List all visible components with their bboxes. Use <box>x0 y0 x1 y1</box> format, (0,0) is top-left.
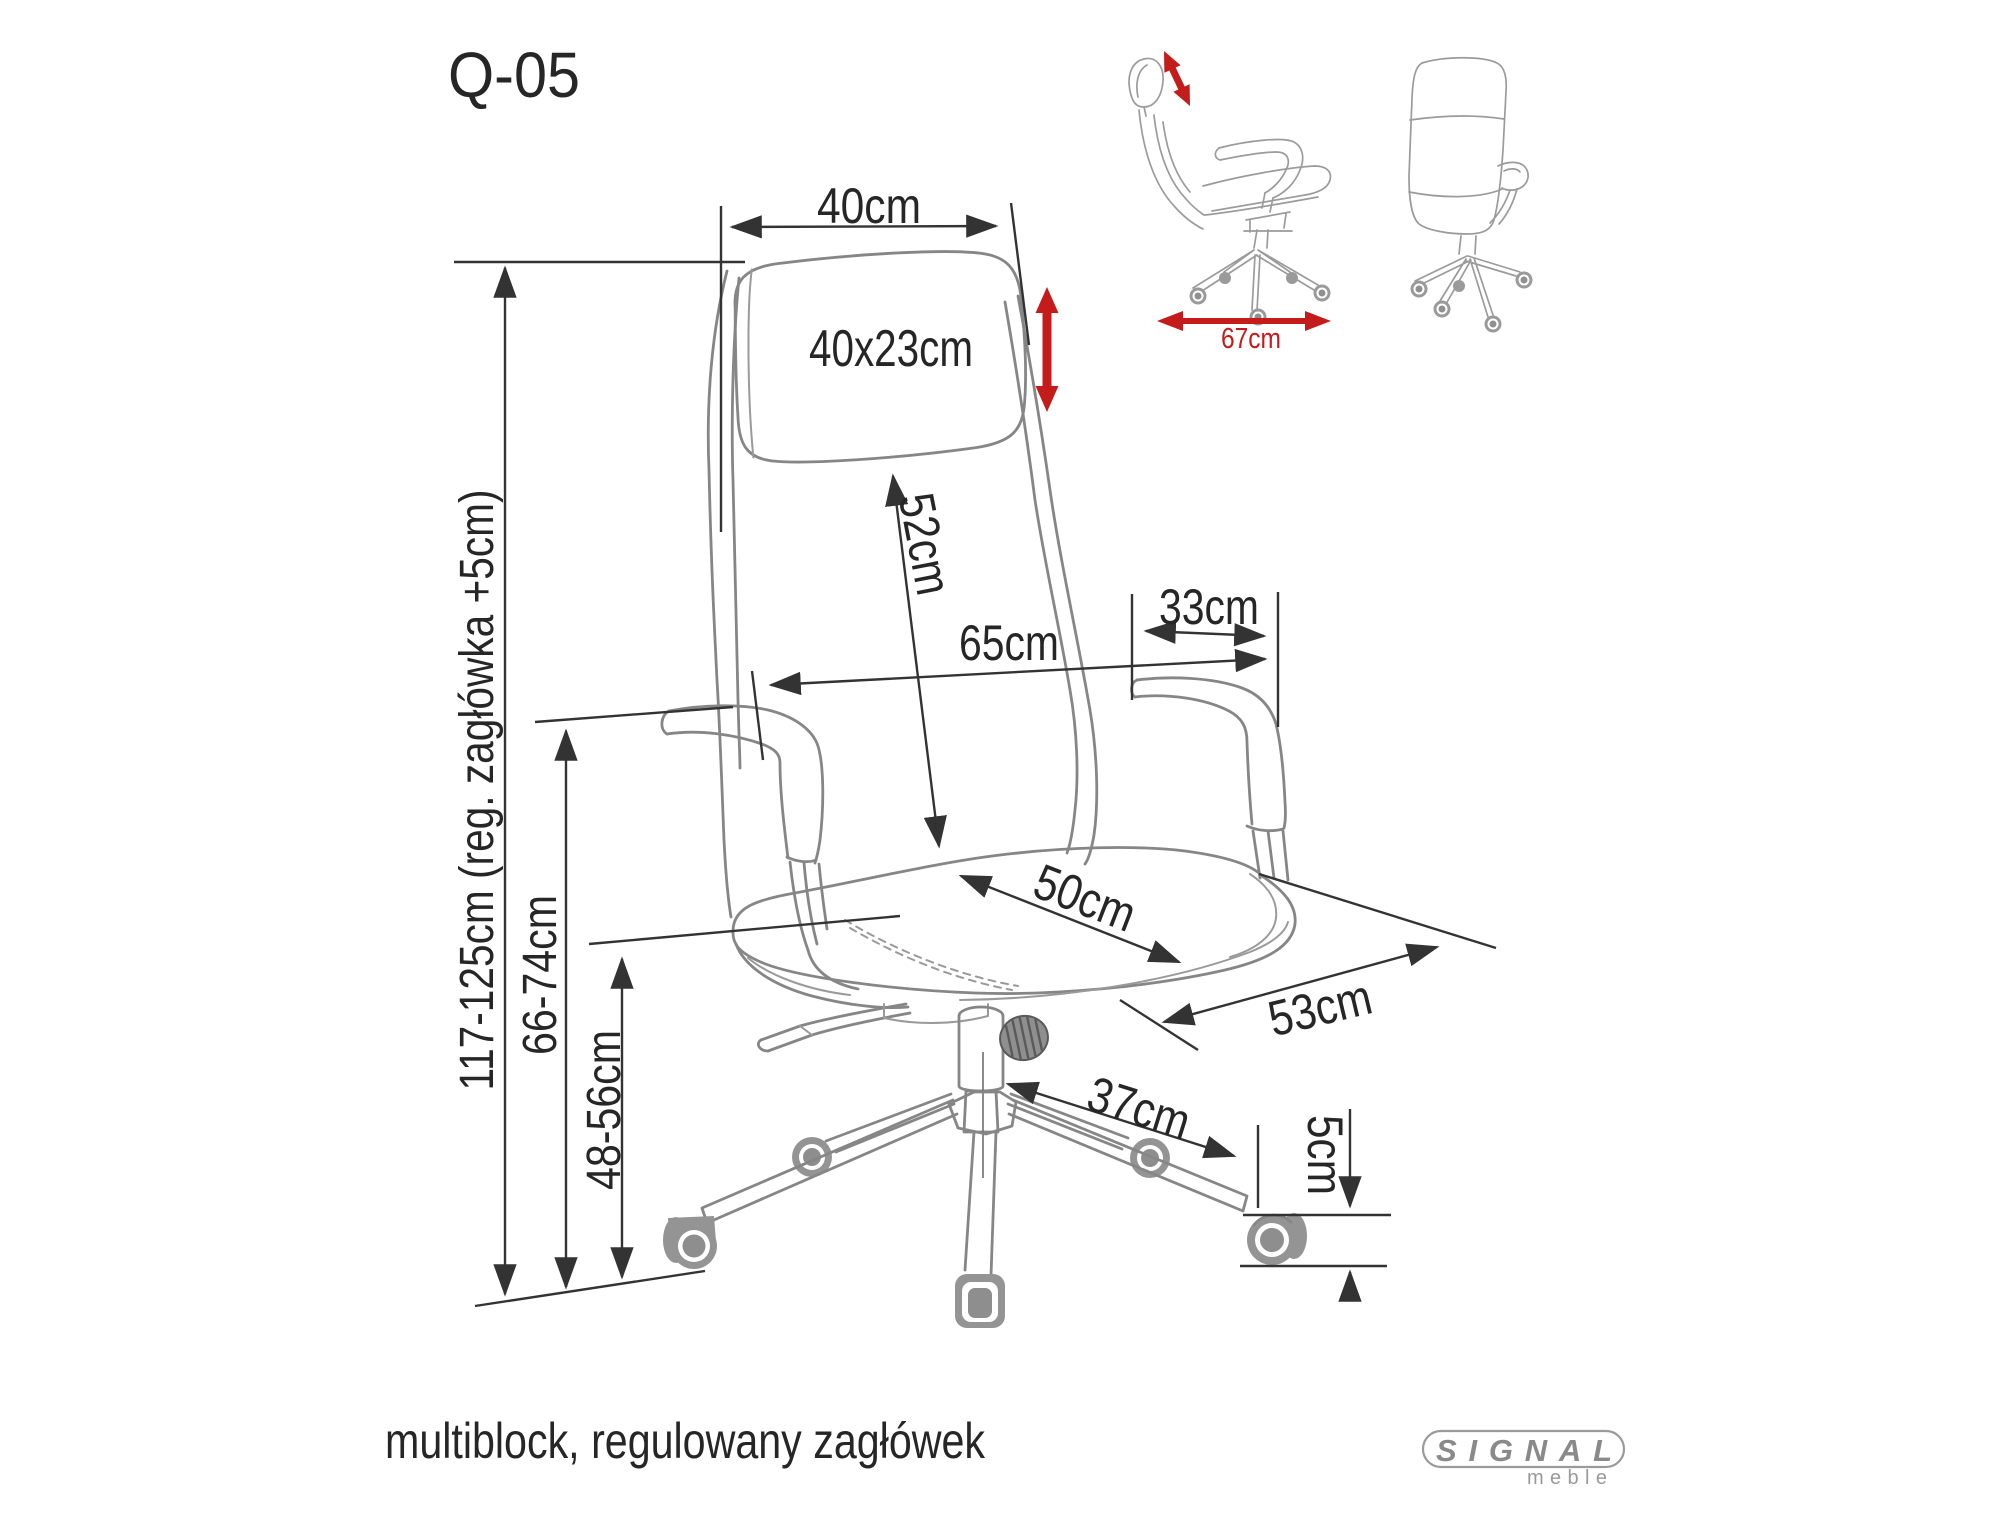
svg-text:52cm: 52cm <box>888 489 962 600</box>
svg-text:Q-05: Q-05 <box>448 39 580 111</box>
svg-text:SIGNAL: SIGNAL <box>1436 1433 1612 1468</box>
svg-text:65cm: 65cm <box>959 615 1059 671</box>
svg-text:multiblock, regulowany zagłówe: multiblock, regulowany zagłówek <box>385 1413 986 1469</box>
svg-text:40x23cm: 40x23cm <box>809 320 973 378</box>
svg-text:48-56cm: 48-56cm <box>578 1030 631 1190</box>
svg-text:53cm: 53cm <box>1263 969 1377 1048</box>
svg-text:33cm: 33cm <box>1159 579 1259 635</box>
svg-text:50cm: 50cm <box>1026 853 1143 943</box>
svg-text:67cm: 67cm <box>1221 323 1281 355</box>
svg-text:66-74cm: 66-74cm <box>514 895 567 1055</box>
svg-text:5cm: 5cm <box>1297 1115 1353 1195</box>
svg-text:40cm: 40cm <box>817 178 921 234</box>
svg-text:117-125cm (reg. zagłówka +5cm): 117-125cm (reg. zagłówka +5cm) <box>451 490 504 1091</box>
svg-text:meble: meble <box>1527 1467 1607 1489</box>
svg-text:37cm: 37cm <box>1081 1066 1197 1151</box>
